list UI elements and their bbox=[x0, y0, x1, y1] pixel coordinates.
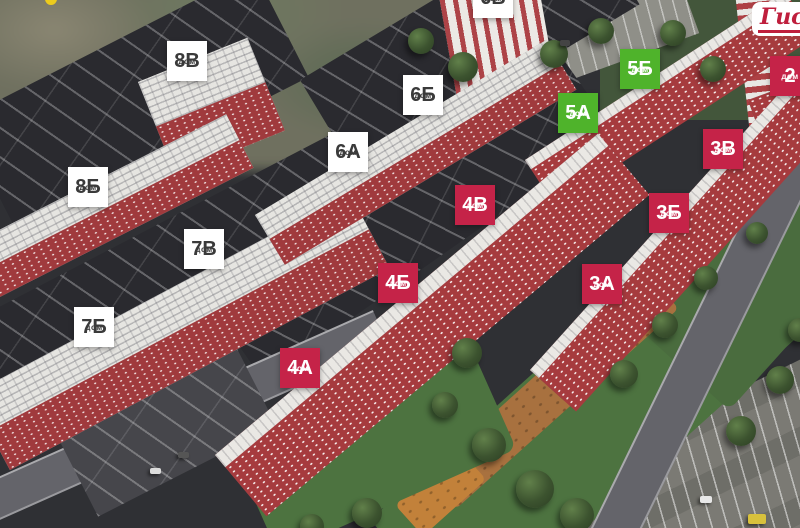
tree bbox=[408, 28, 434, 54]
building-label-3v[interactable]: 3Вдом bbox=[703, 129, 743, 169]
building-label-8v[interactable]: 8Вдом bbox=[167, 41, 207, 81]
building-label-8b[interactable]: 8Бдом bbox=[68, 167, 108, 207]
tree bbox=[652, 312, 678, 338]
building-label-sub: дом bbox=[339, 149, 356, 157]
tree bbox=[452, 338, 482, 368]
building-label-2[interactable]: 2дом bbox=[770, 56, 800, 96]
tree bbox=[448, 52, 478, 82]
building-label-sub: дом bbox=[660, 210, 677, 218]
building-label-sub: дом bbox=[466, 202, 483, 210]
tree bbox=[432, 392, 458, 418]
building-label-4v[interactable]: 4Вдом bbox=[455, 185, 495, 225]
car-white bbox=[700, 496, 712, 503]
building-label-sub: дом bbox=[714, 146, 731, 154]
watermark-text: Гис bbox=[760, 4, 800, 30]
building-label-sub: дом bbox=[569, 110, 586, 118]
bus-yellow bbox=[748, 514, 766, 524]
watermark-underline bbox=[758, 30, 800, 33]
building-label-sub: дом bbox=[484, 0, 501, 3]
building-label-5b[interactable]: 5Бдом bbox=[620, 49, 660, 89]
building-label-7b[interactable]: 7Бдом bbox=[74, 307, 114, 347]
building-label-4a[interactable]: 4Адом bbox=[280, 348, 320, 388]
car-dark bbox=[178, 452, 189, 458]
building-label-sub: дом bbox=[389, 280, 406, 288]
car-dark bbox=[560, 40, 570, 46]
tree bbox=[726, 416, 756, 446]
building-label-5a[interactable]: 5Адом bbox=[558, 93, 598, 133]
tree bbox=[694, 266, 718, 290]
building-label-7v[interactable]: 7Вдом bbox=[184, 229, 224, 269]
tree bbox=[560, 498, 594, 528]
car-white bbox=[150, 468, 161, 474]
tree bbox=[516, 470, 554, 508]
tree bbox=[610, 360, 638, 388]
building-label-4b[interactable]: 4Бдом bbox=[378, 263, 418, 303]
building-label-sub: дом bbox=[414, 92, 431, 100]
building-label-6a[interactable]: 6Адом bbox=[328, 132, 368, 172]
building-label-sub: дом bbox=[85, 324, 102, 332]
building-label-6b[interactable]: 6Бдом bbox=[403, 75, 443, 115]
building-label-sub: дом bbox=[593, 281, 610, 289]
tree bbox=[766, 366, 794, 394]
masterplan-map: 8Вдом8Бдом7Вдом7Бдом6Бдом6Адом6Вдом5Бдом… bbox=[0, 0, 800, 528]
building-label-6v[interactable]: 6Вдом bbox=[473, 0, 513, 18]
building-label-sub: дом bbox=[195, 246, 212, 254]
tree bbox=[700, 56, 726, 82]
tree bbox=[588, 18, 614, 44]
building-label-3b[interactable]: 3Бдом bbox=[649, 193, 689, 233]
watermark-badge: Гис bbox=[752, 2, 800, 36]
building-label-sub: дом bbox=[781, 73, 798, 81]
building-label-sub: дом bbox=[79, 184, 96, 192]
tree bbox=[660, 20, 686, 46]
building-label-3a[interactable]: 3Адом bbox=[582, 264, 622, 304]
tree bbox=[352, 498, 382, 528]
tree bbox=[472, 428, 506, 462]
building-label-sub: дом bbox=[631, 66, 648, 74]
tree bbox=[746, 222, 768, 244]
building-label-sub: дом bbox=[291, 365, 308, 373]
building-label-sub: дом bbox=[178, 58, 195, 66]
